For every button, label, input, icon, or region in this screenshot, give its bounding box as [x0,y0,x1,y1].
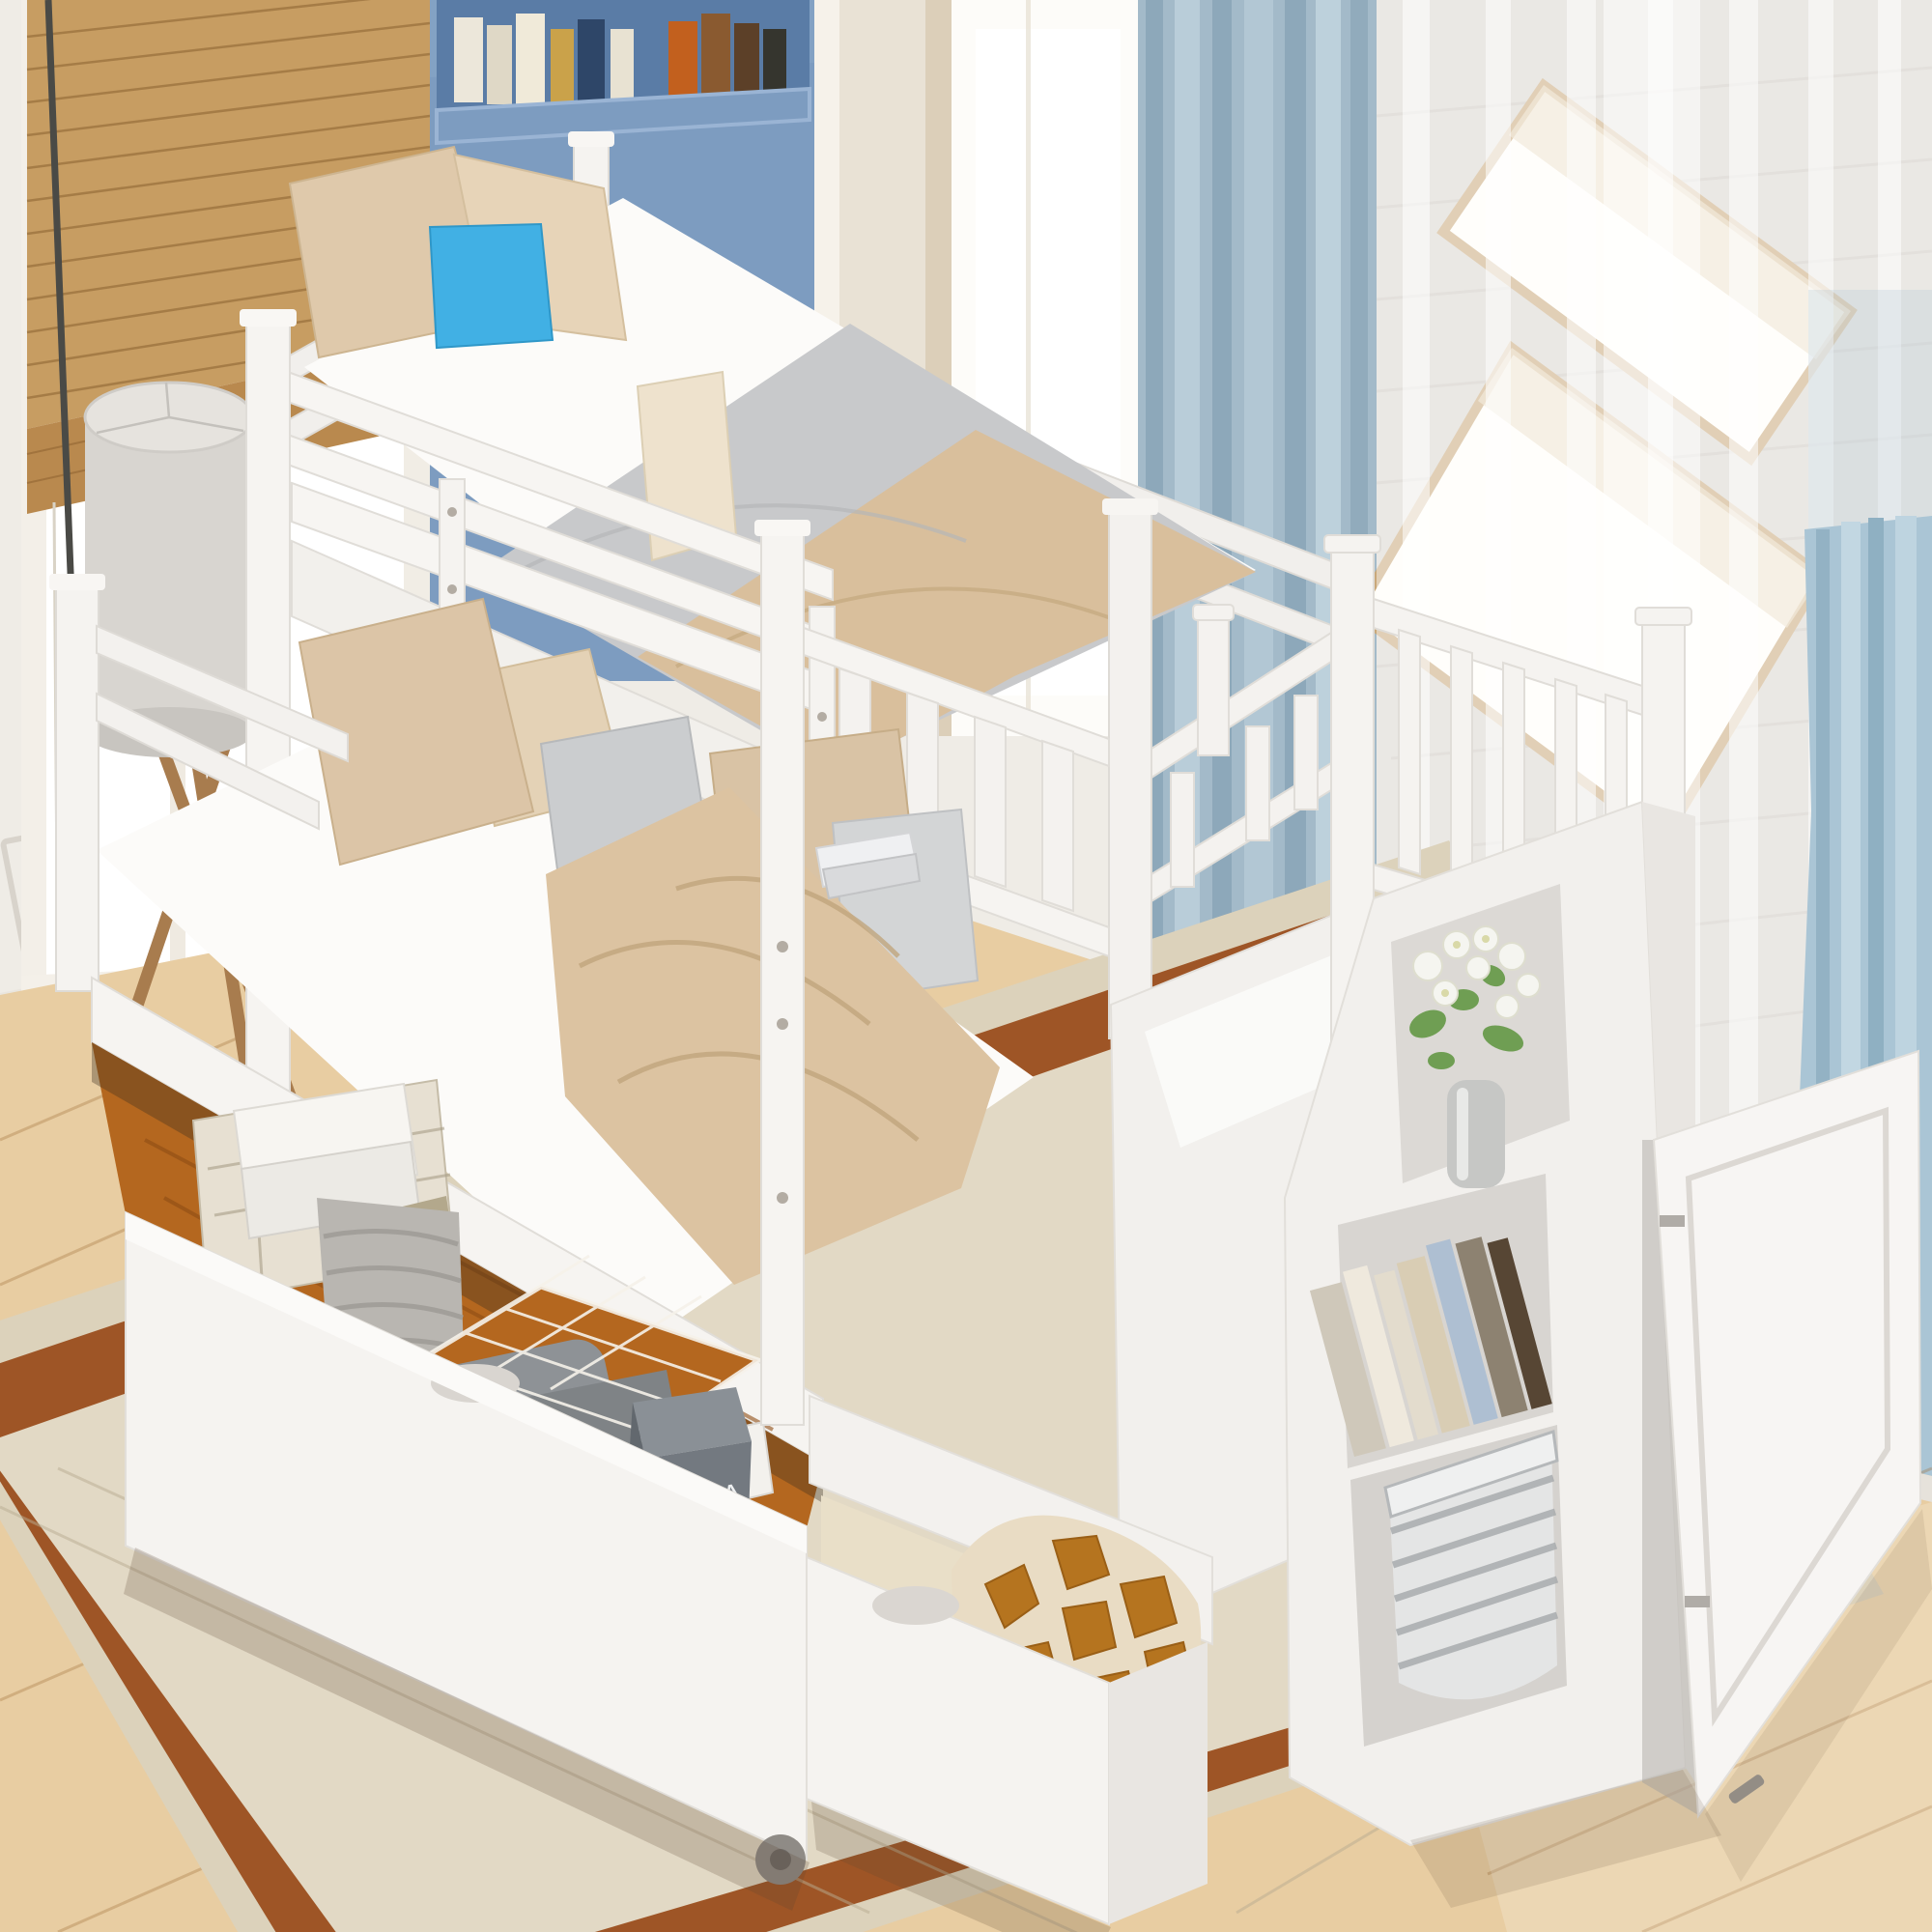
pillow-blue [430,224,553,348]
door-hinge-top [1660,1215,1685,1227]
back-foot-post [1102,498,1158,1038]
bedroom-photo: ROBERT LONGO PEADA [0,0,1932,1932]
front-foot-post [754,520,810,1425]
step-drawer-side [1109,1642,1207,1924]
scene-svg: ROBERT LONGO PEADA [0,0,1932,1932]
door-hinge-bottom [1685,1596,1710,1607]
step-drawer-scallop [872,1586,959,1625]
vase-highlight [1457,1088,1468,1180]
silver-vase [1447,1080,1505,1188]
